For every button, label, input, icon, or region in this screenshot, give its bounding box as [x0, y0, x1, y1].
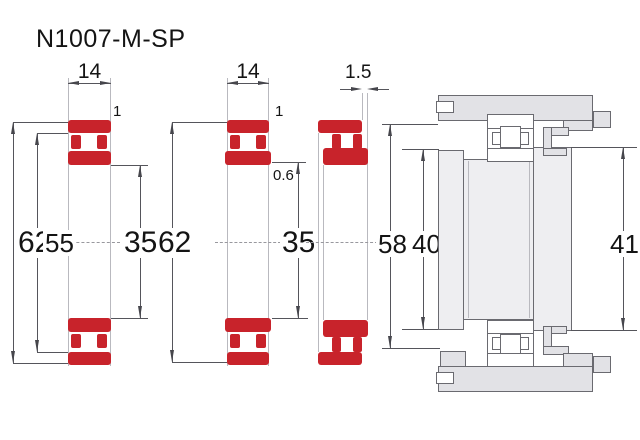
extension-line	[272, 318, 308, 319]
outer-ring-top	[68, 120, 111, 133]
extension-line	[111, 165, 148, 166]
arrow-down-icon	[388, 336, 392, 348]
rib-right	[256, 334, 266, 348]
bearing-drawing-page: N1007-M-SP 14 1 62 55	[0, 0, 640, 440]
extension-line	[172, 122, 227, 123]
outer-ring-top	[318, 120, 362, 133]
arrow-up-icon	[35, 133, 39, 145]
bearing-inner-ring-bottom	[487, 320, 534, 334]
extension-line	[382, 124, 438, 125]
arrow-up-icon	[621, 147, 625, 159]
arrow-left-icon	[367, 87, 378, 91]
arrow-up-icon	[11, 122, 15, 134]
bearing-inner-ring-top	[487, 148, 534, 162]
abutment-diameter-label: 41	[608, 231, 640, 257]
arrow-down-icon	[35, 340, 39, 352]
bore-diameter-label: 35	[280, 228, 317, 258]
shaft-chamfer-line	[529, 161, 530, 318]
housing-groove-bottom	[436, 372, 454, 384]
outer-ring-bottom	[318, 352, 362, 365]
extension-line	[13, 122, 68, 123]
dimension-width-label: 14	[68, 61, 111, 82]
angle-ring-top	[543, 148, 567, 156]
arrow-up-icon	[421, 149, 425, 161]
extension-line	[111, 318, 148, 319]
dimension-tail	[340, 89, 351, 90]
arrow-down-icon	[296, 306, 300, 318]
extension-line	[571, 330, 637, 331]
housing-shoulder-diameter-label: 58	[376, 231, 409, 257]
rib-left	[71, 334, 81, 348]
outer-diameter-label: 62	[156, 228, 193, 258]
inner-ring-top	[225, 151, 271, 165]
outer-ring-bottom	[227, 352, 269, 365]
dimension-tail	[378, 89, 389, 90]
arrow-down-icon	[170, 350, 174, 362]
extension-line	[272, 162, 306, 163]
inner-ring-top	[68, 151, 111, 165]
inner-chamfer-label: 0.6	[271, 168, 296, 183]
abutment-sleeve	[533, 147, 572, 331]
cage-rib-right	[520, 337, 529, 350]
arrow-up-icon	[296, 162, 300, 174]
housing-groove-top	[436, 101, 454, 113]
rib-left	[332, 134, 341, 149]
rib-left	[71, 135, 81, 149]
roller-top	[500, 126, 521, 148]
rib-left	[230, 334, 240, 348]
arrow-right-icon	[351, 87, 362, 91]
arrow-down-icon	[138, 306, 142, 318]
arrow-down-icon	[421, 317, 425, 329]
outer-ring-bottom	[68, 352, 111, 365]
page-title: N1007-M-SP	[36, 27, 186, 52]
extension-line	[362, 93, 363, 120]
inner-ring-bottom	[68, 318, 111, 332]
extension-line	[172, 362, 227, 363]
rib-right	[256, 135, 266, 149]
dimension-line	[13, 122, 14, 363]
housing-bottom	[438, 366, 593, 392]
rib-right	[97, 334, 107, 348]
extension-line	[37, 133, 68, 134]
extension-line	[382, 348, 440, 349]
shaft-shoulder	[438, 150, 464, 330]
extension-line	[13, 363, 68, 364]
extension-line	[402, 149, 439, 150]
extension-line	[571, 147, 637, 148]
arrow-up-icon	[388, 124, 392, 136]
cage-rib-right	[520, 132, 529, 145]
rib-right	[97, 135, 107, 149]
chamfer-label: 1	[113, 104, 121, 119]
inner-ring-bottom	[225, 318, 271, 332]
arrow-up-icon	[170, 122, 174, 134]
axial-offset-label: 1.5	[345, 63, 371, 82]
housing-bottom-tab	[593, 356, 611, 373]
shaft-seat	[463, 159, 534, 320]
arrow-up-icon	[138, 165, 142, 177]
rib-diameter-label: 55	[43, 230, 76, 256]
chamfer-label: 1	[275, 104, 283, 119]
rib-left	[332, 337, 341, 352]
rib-right	[353, 134, 362, 149]
inner-ring-top	[323, 148, 368, 165]
outer-ring-top	[227, 120, 269, 133]
rib-left	[230, 135, 240, 149]
arrow-down-icon	[621, 318, 625, 330]
extension-line	[402, 329, 439, 330]
housing-top-tab	[593, 111, 611, 128]
shaft-chamfer-line	[468, 161, 469, 318]
inner-ring-bottom	[323, 320, 368, 337]
edge-line	[367, 93, 368, 320]
arrow-down-icon	[11, 351, 15, 363]
dimension-width-label: 14	[227, 61, 269, 82]
rib-right	[353, 337, 362, 352]
centerline	[306, 242, 378, 243]
centerline	[215, 242, 281, 243]
bore-diameter-label: 35	[122, 228, 159, 258]
extension-line	[37, 352, 68, 353]
